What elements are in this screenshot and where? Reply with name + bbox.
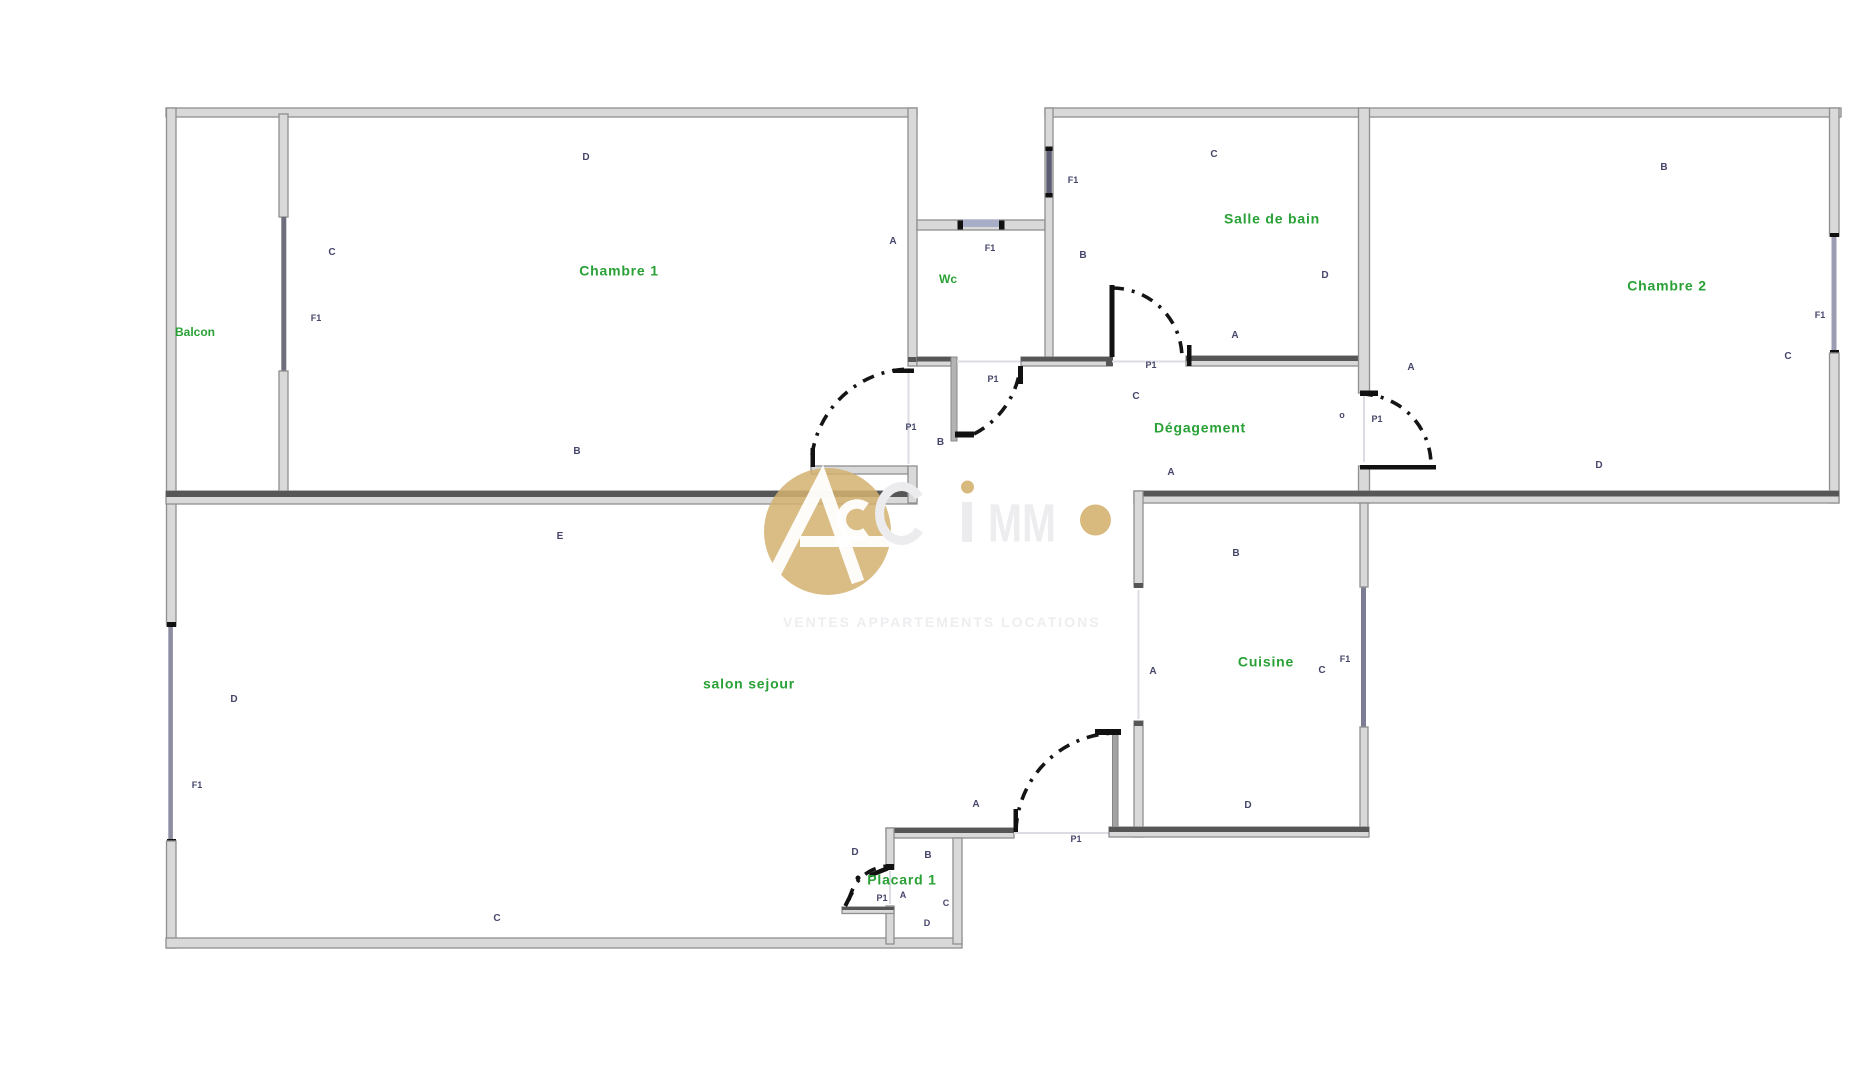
svg-text:VENTES APPARTEMENTS LOCATIONS: VENTES APPARTEMENTS LOCATIONS <box>783 614 1101 630</box>
svg-text:Salle de bain: Salle de bain <box>1224 211 1320 227</box>
svg-text:C: C <box>493 913 500 924</box>
svg-text:C: C <box>328 247 335 258</box>
svg-text:Cuisine: Cuisine <box>1238 654 1294 670</box>
svg-text:Chambre 1: Chambre 1 <box>579 263 659 279</box>
svg-text:C: C <box>1784 351 1791 362</box>
svg-text:A: A <box>1407 362 1414 373</box>
svg-text:B: B <box>924 850 931 861</box>
svg-text:salon sejour: salon sejour <box>703 676 795 692</box>
svg-text:B: B <box>1079 250 1086 261</box>
svg-text:C: C <box>943 898 950 908</box>
svg-text:B: B <box>1232 548 1239 559</box>
svg-text:P1: P1 <box>1145 360 1156 370</box>
svg-text:P1: P1 <box>987 374 998 384</box>
svg-text:B: B <box>937 437 944 448</box>
svg-text:o: o <box>1339 410 1345 420</box>
svg-text:D: D <box>1244 800 1251 811</box>
svg-text:E: E <box>557 531 564 542</box>
svg-text:D: D <box>1595 460 1602 471</box>
svg-text:F1: F1 <box>311 313 322 323</box>
svg-text:Dégagement: Dégagement <box>1154 420 1246 436</box>
svg-text:Placard 1: Placard 1 <box>867 872 936 888</box>
svg-text:F1: F1 <box>1068 175 1079 185</box>
svg-text:P1: P1 <box>905 422 916 432</box>
svg-text:A: A <box>889 236 896 247</box>
svg-text:C: C <box>1318 665 1325 676</box>
svg-text:P1: P1 <box>1070 834 1081 844</box>
svg-text:D: D <box>851 847 858 858</box>
svg-text:A: A <box>1167 467 1174 478</box>
svg-text:D: D <box>582 152 589 163</box>
svg-text:MM: MM <box>988 494 1056 554</box>
svg-text:A: A <box>1231 330 1238 341</box>
svg-text:P1: P1 <box>1371 414 1382 424</box>
svg-text:D: D <box>1321 270 1328 281</box>
svg-text:B: B <box>1660 162 1667 173</box>
svg-text:Wc: Wc <box>939 272 957 286</box>
svg-text:F1: F1 <box>985 243 996 253</box>
svg-text:Balcon: Balcon <box>175 325 215 339</box>
svg-text:F1: F1 <box>1815 310 1826 320</box>
svg-text:A: A <box>972 799 979 810</box>
svg-text:A: A <box>1149 666 1156 677</box>
svg-text:Chambre 2: Chambre 2 <box>1627 278 1707 294</box>
svg-text:P1: P1 <box>876 893 887 903</box>
svg-text:D: D <box>924 918 931 928</box>
svg-text:F1: F1 <box>1340 654 1351 664</box>
svg-text:C: C <box>1210 149 1217 160</box>
svg-text:D: D <box>230 694 237 705</box>
svg-text:A: A <box>900 890 907 900</box>
svg-text:B: B <box>573 446 580 457</box>
svg-text:F1: F1 <box>192 780 203 790</box>
svg-text:C: C <box>1132 391 1139 402</box>
